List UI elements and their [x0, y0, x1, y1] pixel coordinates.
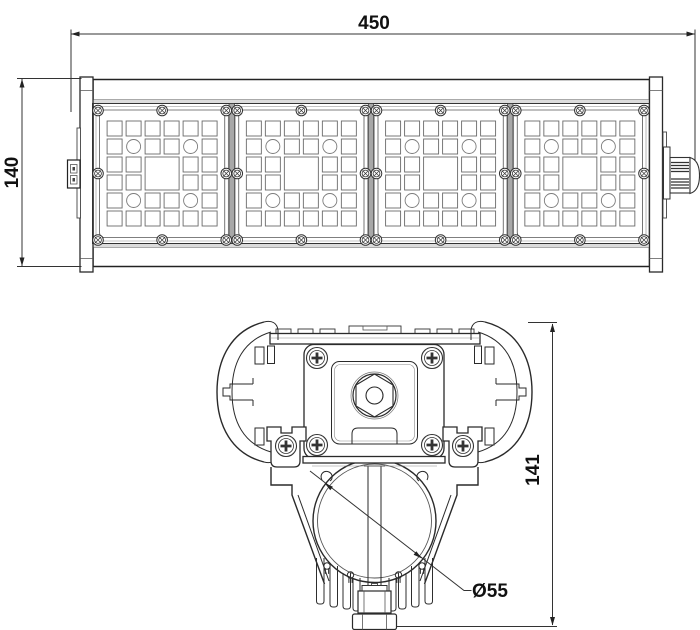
dim-height-profile-label: 141: [523, 454, 544, 486]
mounting-bar: [270, 326, 480, 344]
cable-gland: [663, 132, 700, 218]
bottom-rail-groove: [93, 244, 650, 248]
dim-height-front-label: 140: [2, 157, 23, 189]
front-view: 450 140: [2, 13, 700, 272]
bottom-bolt: [353, 584, 397, 630]
bracket-screw-tr: [422, 348, 443, 369]
bracket-screw-br: [422, 435, 443, 456]
end-cap-right: [650, 77, 663, 272]
foot-screw-left: [276, 436, 297, 457]
dim-width-label: 450: [358, 13, 390, 34]
slot-left: [268, 346, 275, 364]
mounting-bracket: [304, 345, 444, 459]
swivel-joint: [351, 372, 398, 419]
drawing-canvas: 450 140: [0, 0, 700, 630]
slot-right: [475, 346, 482, 364]
top-rail-groove: [93, 100, 650, 104]
foot-screw-right: [453, 436, 474, 457]
end-cap-left: [80, 77, 93, 272]
dim-diameter-label: Ø55: [472, 581, 508, 602]
profile-view: 141 Ø55: [217, 321, 557, 629]
bracket-screw-tl: [307, 348, 328, 369]
floodlight-technical-drawing: 450 140: [0, 0, 700, 630]
mounting-pipe: [313, 460, 436, 591]
left-mounting-lug: [68, 128, 81, 218]
bracket-screw-bl: [307, 435, 328, 456]
gland-dome: [690, 158, 700, 194]
